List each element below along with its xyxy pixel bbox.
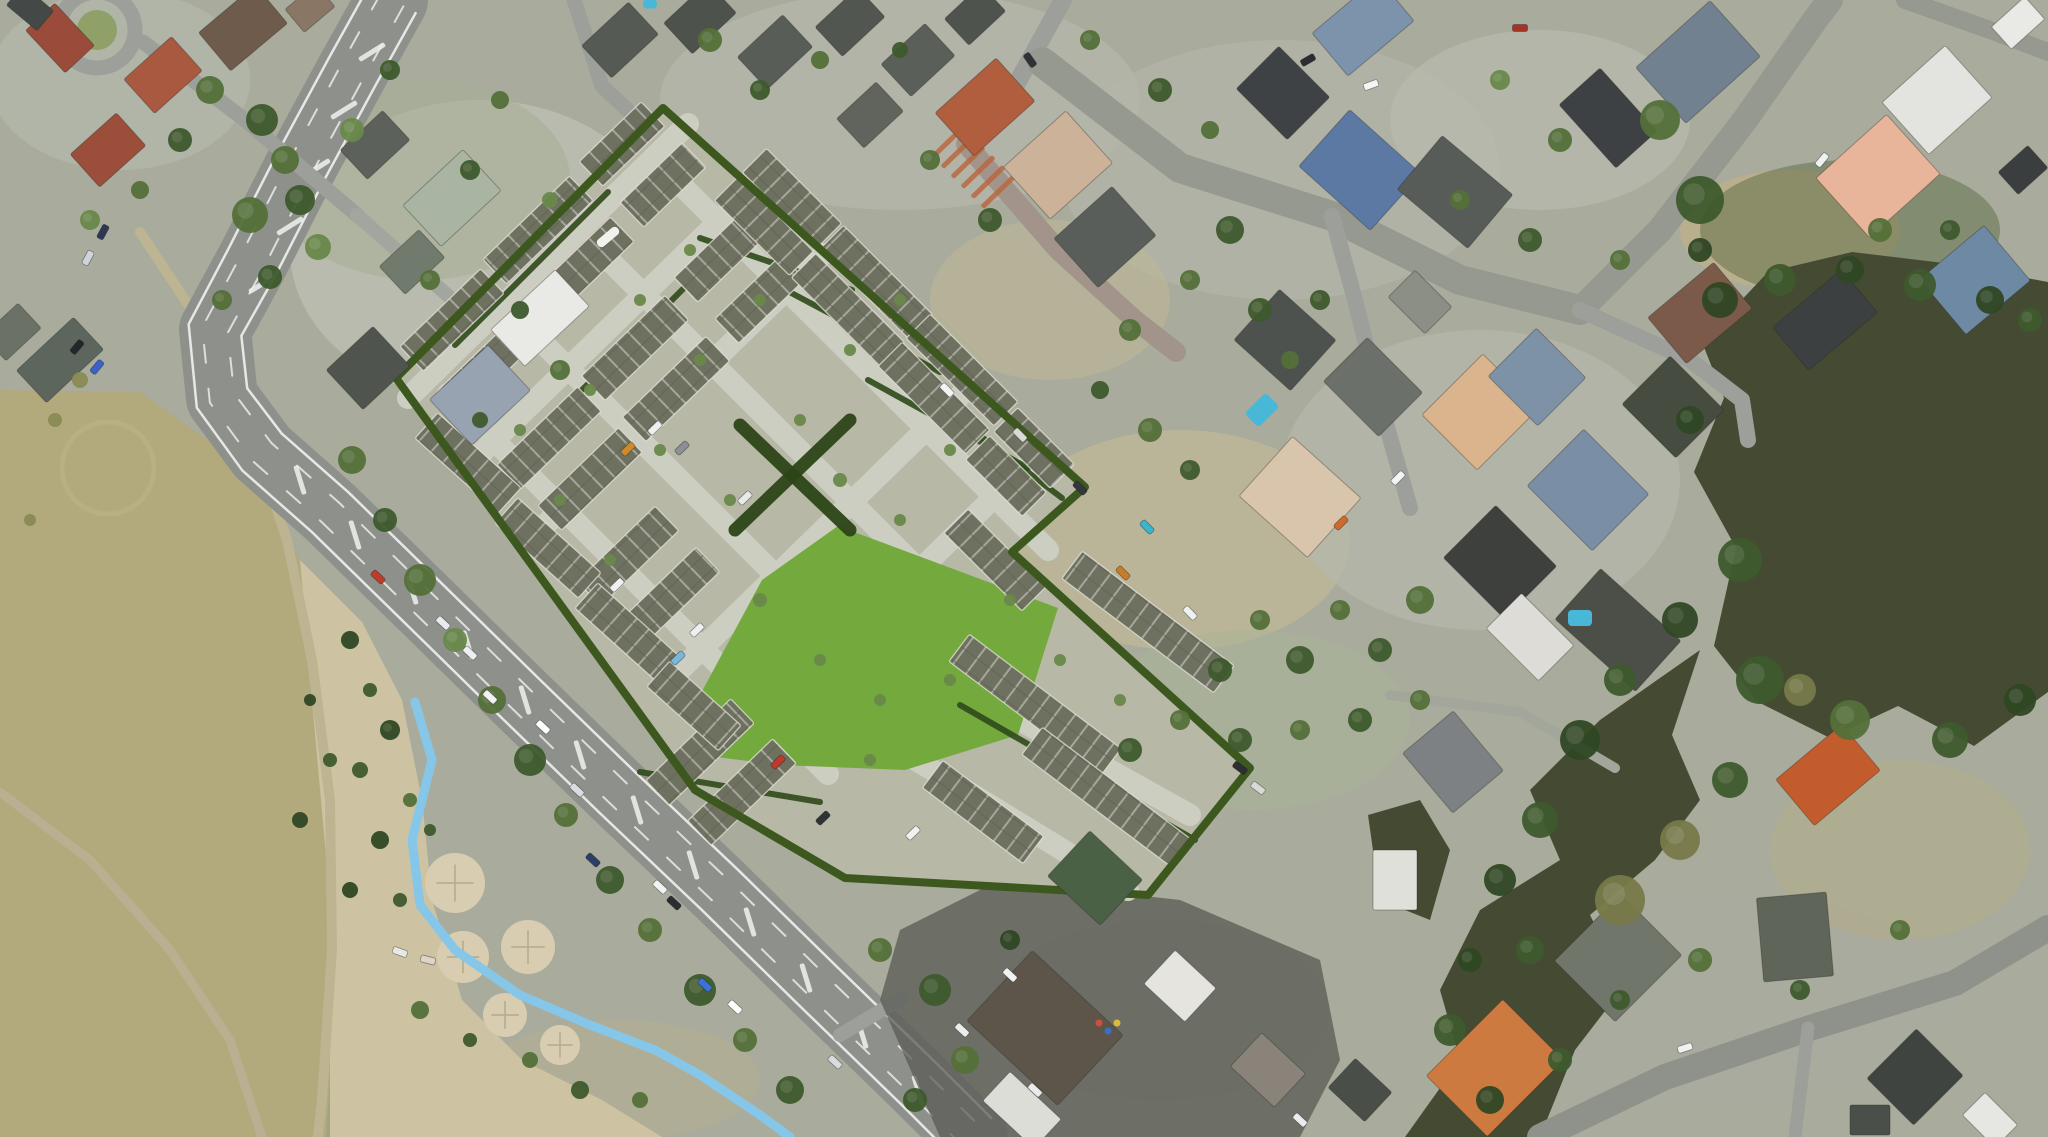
- tree-highlight: [1692, 242, 1703, 253]
- tree: [411, 1001, 429, 1019]
- tree: [1004, 594, 1016, 606]
- tree: [754, 294, 766, 306]
- tree: [403, 793, 417, 807]
- tree: [844, 344, 856, 356]
- tree-highlight: [1552, 1052, 1563, 1063]
- tree-highlight: [1003, 933, 1012, 942]
- swimming-pool: [1568, 610, 1592, 626]
- tree-highlight: [1290, 650, 1303, 663]
- tree-highlight: [1566, 726, 1584, 744]
- tree-highlight: [519, 749, 533, 763]
- tree-highlight: [923, 153, 932, 162]
- tree-highlight: [1789, 679, 1803, 693]
- tree: [864, 754, 876, 766]
- tree-highlight: [262, 269, 273, 280]
- tree-highlight: [409, 569, 423, 583]
- tree-highlight: [1522, 232, 1533, 243]
- tree-highlight: [1439, 1019, 1453, 1033]
- tree: [472, 412, 488, 428]
- tree-highlight: [1410, 590, 1423, 603]
- tree-highlight: [558, 807, 569, 818]
- tree: [363, 683, 377, 697]
- tree: [892, 42, 908, 58]
- tree-highlight: [1489, 869, 1503, 883]
- tree: [894, 514, 906, 526]
- tree: [1281, 351, 1299, 369]
- tree-highlight: [642, 922, 653, 933]
- tree-highlight: [1603, 883, 1626, 906]
- tree-highlight: [1613, 993, 1622, 1002]
- tree-highlight: [1793, 983, 1802, 992]
- tree-highlight: [275, 150, 288, 163]
- tree-highlight: [1333, 603, 1342, 612]
- tree-highlight: [600, 870, 613, 883]
- tree-highlight: [309, 238, 321, 250]
- tree: [292, 812, 308, 828]
- tree: [753, 593, 767, 607]
- tree: [1091, 381, 1109, 399]
- tree: [393, 893, 407, 907]
- tree: [522, 1052, 538, 1068]
- tree: [554, 494, 566, 506]
- tree-highlight: [924, 979, 938, 993]
- tree-highlight: [2022, 312, 2033, 323]
- tree: [894, 294, 906, 306]
- tree: [542, 192, 558, 208]
- tree: [814, 654, 826, 666]
- tree-highlight: [344, 122, 355, 133]
- tree-highlight: [780, 1080, 793, 1093]
- tree-highlight: [1666, 826, 1684, 844]
- tree-highlight: [1462, 952, 1473, 963]
- tree: [833, 473, 847, 487]
- tree-highlight: [1552, 132, 1563, 143]
- tree: [571, 1081, 589, 1099]
- tree-highlight: [1352, 712, 1363, 723]
- tree: [811, 51, 829, 69]
- tree-highlight: [1909, 274, 1923, 288]
- tree-highlight: [1413, 693, 1422, 702]
- tree-highlight: [1122, 322, 1132, 332]
- tree-highlight: [383, 723, 392, 732]
- tree: [634, 294, 646, 306]
- tree: [424, 824, 436, 836]
- tree-highlight: [1480, 1090, 1493, 1103]
- tree: [352, 762, 368, 778]
- tree-highlight: [1683, 183, 1705, 205]
- tree-highlight: [702, 32, 713, 43]
- tree-highlight: [1613, 253, 1622, 262]
- tree-highlight: [1220, 220, 1233, 233]
- tree-highlight: [1667, 607, 1683, 623]
- tree: [514, 424, 526, 436]
- tree-highlight: [553, 363, 562, 372]
- playground-equipment: [1114, 1020, 1121, 1027]
- tree-highlight: [907, 1092, 918, 1103]
- tree-highlight: [290, 190, 304, 204]
- tree-highlight: [342, 450, 355, 463]
- tree: [632, 1092, 648, 1108]
- tree-highlight: [1173, 713, 1182, 722]
- tree: [341, 631, 359, 649]
- tree-highlight: [237, 202, 253, 218]
- tree: [684, 244, 696, 256]
- tree: [48, 413, 62, 427]
- tree-highlight: [200, 80, 213, 93]
- tree-highlight: [1717, 767, 1733, 783]
- tree: [1054, 654, 1066, 666]
- tree-highlight: [1142, 422, 1153, 433]
- tree-highlight: [872, 942, 883, 953]
- tree: [511, 301, 529, 319]
- tree: [371, 831, 389, 849]
- tree-highlight: [383, 63, 392, 72]
- tree-highlight: [1743, 663, 1765, 685]
- tree-highlight: [1872, 222, 1883, 233]
- tree-highlight: [1707, 287, 1723, 303]
- tree-highlight: [423, 273, 432, 282]
- tree: [944, 674, 956, 686]
- tree-highlight: [1453, 193, 1462, 202]
- tree-highlight: [83, 213, 92, 222]
- tree-highlight: [1680, 410, 1693, 423]
- tree: [342, 882, 358, 898]
- tree-highlight: [1980, 290, 1993, 303]
- house-roof: [1850, 1105, 1890, 1135]
- tree: [874, 694, 886, 706]
- house-roof: [1756, 892, 1833, 982]
- tree-highlight: [1937, 727, 1953, 743]
- tree-highlight: [1893, 923, 1902, 932]
- tree-highlight: [1943, 223, 1952, 232]
- tree: [304, 694, 316, 706]
- tree-highlight: [215, 293, 224, 302]
- swimming-pool: [643, 0, 657, 9]
- tree-highlight: [1253, 613, 1262, 622]
- tree: [24, 514, 36, 526]
- tree: [794, 414, 806, 426]
- tree-highlight: [1836, 706, 1854, 724]
- tree: [463, 1033, 477, 1047]
- tree-highlight: [1122, 742, 1133, 753]
- tree-highlight: [753, 83, 762, 92]
- tree: [131, 181, 149, 199]
- tree-highlight: [1769, 269, 1783, 283]
- tree: [491, 91, 509, 109]
- tree-highlight: [1520, 940, 1533, 953]
- tree-highlight: [463, 163, 472, 172]
- tree-highlight: [172, 132, 183, 143]
- tree-highlight: [955, 1050, 968, 1063]
- tree: [584, 384, 596, 396]
- tree-highlight: [1212, 662, 1223, 673]
- car: [1513, 25, 1528, 32]
- tree: [1201, 121, 1219, 139]
- tree-highlight: [1183, 273, 1192, 282]
- tree-highlight: [377, 512, 388, 523]
- house-roof: [1373, 850, 1417, 910]
- tree: [604, 554, 616, 566]
- tree: [323, 753, 337, 767]
- playground-equipment: [1105, 1028, 1112, 1035]
- tree-highlight: [1293, 723, 1302, 732]
- tree-highlight: [1609, 669, 1623, 683]
- aerial-photo-canvas: [0, 0, 2048, 1137]
- tree-highlight: [251, 109, 265, 123]
- tree-highlight: [1527, 807, 1543, 823]
- tree: [1114, 694, 1126, 706]
- tree-highlight: [1372, 642, 1383, 653]
- tree: [72, 372, 88, 388]
- tree-highlight: [2009, 689, 2023, 703]
- tree-highlight: [1232, 732, 1243, 743]
- tree-highlight: [1252, 302, 1263, 313]
- tree-highlight: [1183, 463, 1192, 472]
- tree-highlight: [1313, 293, 1322, 302]
- tree-highlight: [1646, 106, 1664, 124]
- tree-highlight: [1725, 545, 1745, 565]
- tree: [654, 444, 666, 456]
- tree-highlight: [1692, 952, 1703, 963]
- tree-highlight: [982, 212, 993, 223]
- tree: [944, 444, 956, 456]
- tree-highlight: [737, 1032, 748, 1043]
- tree-highlight: [1840, 260, 1853, 273]
- aerial-screenshot: [0, 0, 2048, 1137]
- tree-highlight: [1152, 82, 1163, 93]
- tree-highlight: [1083, 33, 1092, 42]
- tree-highlight: [447, 632, 458, 643]
- tree-highlight: [1493, 73, 1502, 82]
- playground-equipment: [1096, 1020, 1103, 1027]
- tree: [694, 354, 706, 366]
- tree: [724, 494, 736, 506]
